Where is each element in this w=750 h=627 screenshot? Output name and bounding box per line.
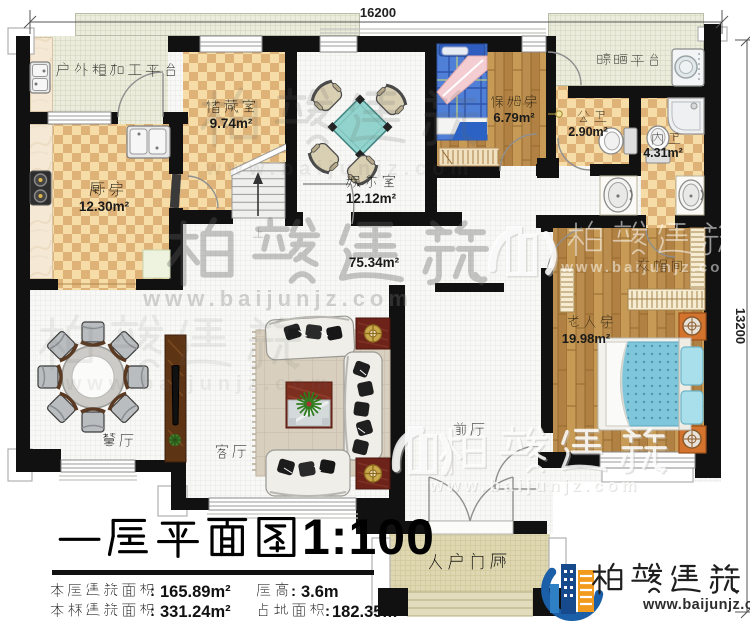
svg-text:www.baijunjz.com: www.baijunjz.com [429, 476, 641, 495]
svg-text::: : [325, 603, 330, 620]
svg-text::: : [150, 603, 155, 620]
svg-text:2.90m²: 2.90m² [568, 125, 608, 139]
svg-text:13200: 13200 [733, 308, 748, 344]
svg-text:9.74m²: 9.74m² [210, 116, 253, 131]
svg-text:1:100: 1:100 [302, 509, 435, 565]
svg-text:75.34m²: 75.34m² [349, 255, 400, 270]
svg-text:3.6m: 3.6m [301, 583, 339, 601]
svg-text::: : [291, 583, 296, 600]
svg-text:6.79m²: 6.79m² [493, 110, 535, 125]
svg-text:www.baijunjz.com: www.baijunjz.com [205, 158, 475, 180]
svg-text:12.12m²: 12.12m² [346, 191, 397, 206]
svg-text::: : [150, 583, 155, 600]
svg-text:www.baijunjz.com: www.baijunjz.com [142, 286, 413, 311]
svg-text:12.30m²: 12.30m² [79, 199, 130, 214]
svg-text:165.89m²: 165.89m² [160, 583, 231, 601]
svg-text:4.31m²: 4.31m² [643, 146, 683, 160]
svg-text:182.35m²: 182.35m² [332, 603, 403, 621]
svg-text:www.baijunjz.com: www.baijunjz.com [642, 597, 750, 613]
svg-text:16200: 16200 [360, 5, 396, 20]
svg-text:19.98m²: 19.98m² [562, 331, 611, 346]
svg-text:331.24m²: 331.24m² [160, 603, 231, 621]
svg-text:www.baijunjz.com: www.baijunjz.com [560, 259, 738, 276]
svg-text:www.baijunjz.com: www.baijunjz.com [65, 373, 335, 395]
